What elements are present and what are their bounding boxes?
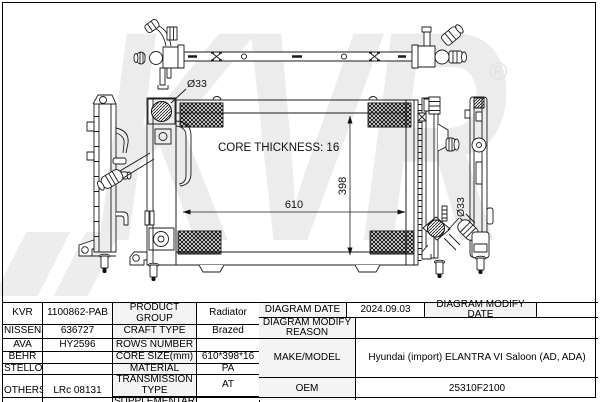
cell-diagram-modify-reason-label: DIAGRAM MODIFY REASON <box>259 318 355 339</box>
cell-brand-behr: BEHR <box>3 352 43 364</box>
cell-brand-others: OTHERS <box>3 375 43 402</box>
brand-cross-reference-table: KVR 1100862-PAB PRODUCT GROUP Radiator N… <box>2 302 260 402</box>
cell-diagram-modify-date-label: DIAGRAM MODIFY DATE <box>424 303 536 318</box>
top-view-drawing <box>134 18 467 89</box>
cell-core-size-label: CORE SIZE(mm) <box>113 352 197 364</box>
cell-core-size-value: 610*398*16 <box>197 352 260 364</box>
cell-brand-stellox: STELLOX <box>3 363 43 375</box>
radiator-datasheet: KVR ® <box>0 0 600 402</box>
cell-make-model-value: Hyundai (import) ELANTRA VI Saloon (AD, … <box>355 339 598 378</box>
cell-craft-type-value: Brazed <box>197 325 260 339</box>
inlet-diameter-text: Ø33 <box>187 78 207 90</box>
cell-rows-number-value <box>197 339 260 352</box>
spec-table: KVR 1100862-PAB PRODUCT GROUP Radiator N… <box>2 302 598 400</box>
cell-brand-ava: AVA <box>3 339 43 352</box>
cell-material-value: PA <box>197 363 260 375</box>
cell-code-behr <box>43 352 113 364</box>
cell-transmission-type-label: TRANSMISSION TYPE <box>113 375 197 397</box>
cell-make-model-label: MAKE/MODEL <box>259 339 355 378</box>
cell-brand-kvr: KVR <box>3 303 43 325</box>
cell-code-stellox <box>43 363 113 375</box>
cell-diagram-date-label: DIAGRAM DATE <box>259 303 346 318</box>
cell-product-group-label: PRODUCT GROUP <box>113 303 197 325</box>
core-thickness-label: CORE THICKNESS: 16 <box>218 142 339 154</box>
cell-diagram-modify-reason-value <box>355 318 598 339</box>
cell-diagram-modify-date-value <box>536 303 598 318</box>
cell-transmission-type-value: AT <box>197 375 260 397</box>
cell-product-group-value: Radiator <box>197 303 260 325</box>
cell-material-label: MATERIAL <box>113 363 197 375</box>
cell-rows-number-label: ROWS NUMBER <box>113 339 197 352</box>
right-side-view-inner <box>418 97 460 278</box>
vehicle-info-table: DIAGRAM DATE 2024.09.03 DIAGRAM MODIFY D… <box>259 302 598 400</box>
fin-hatch-blocks <box>178 103 414 254</box>
core-width-dim: 610 <box>285 199 303 211</box>
cell-code-others: LRc 08131 <box>43 375 113 402</box>
cell-oem-value: 25310F2100 <box>355 378 598 400</box>
right-side-view-outer <box>455 97 493 274</box>
cell-oem-label: OEM <box>259 378 355 400</box>
cell-code-nissens: 636727 <box>43 325 113 339</box>
cell-supplementary-label: SUPPLEMENTARY <box>113 397 197 402</box>
cell-brand-nissens: NISSENS <box>3 325 43 339</box>
core-height-dim: 398 <box>337 177 349 195</box>
cell-supplementary-value <box>197 397 260 402</box>
outlet-diameter-text: Ø33 <box>455 197 467 217</box>
cell-craft-type-label: CRAFT TYPE <box>113 325 197 339</box>
technical-drawing: Ø33 <box>0 0 600 302</box>
cell-code-kvr: 1100862-PAB <box>43 303 113 325</box>
front-view <box>95 97 419 282</box>
cell-code-ava: HY2596 <box>43 339 113 352</box>
cell-diagram-date-value: 2024.09.03 <box>346 303 424 318</box>
